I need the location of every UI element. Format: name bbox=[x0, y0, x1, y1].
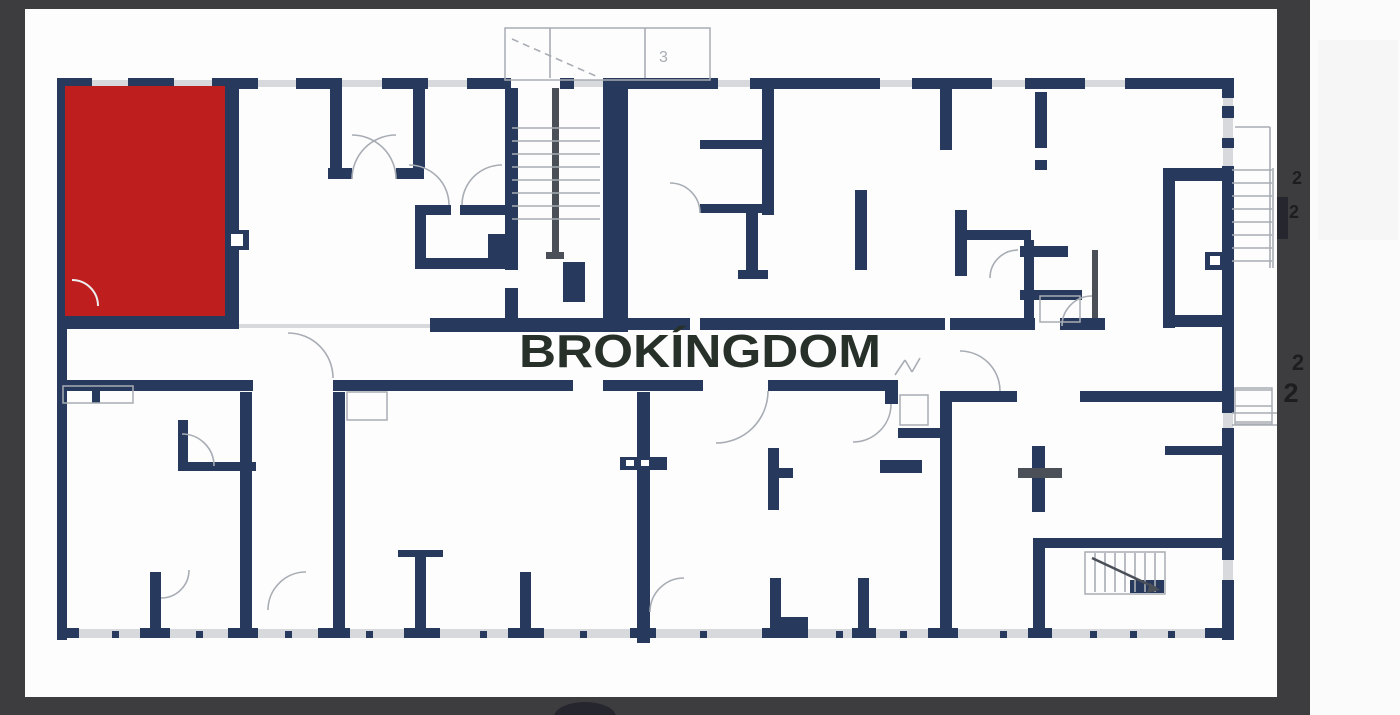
wall-segment bbox=[178, 462, 256, 471]
wall-segment bbox=[750, 78, 880, 89]
wall-segment bbox=[955, 210, 967, 276]
wall-segment bbox=[1000, 631, 1007, 638]
wall-segment bbox=[563, 262, 585, 302]
window-gap bbox=[880, 80, 912, 87]
wall-segment bbox=[1222, 166, 1234, 413]
wall-opening bbox=[1210, 256, 1220, 265]
window-gap bbox=[992, 80, 1025, 87]
wall-segment bbox=[738, 270, 768, 279]
window-gap bbox=[1223, 413, 1233, 428]
wall-segment bbox=[768, 448, 779, 510]
wall-segment bbox=[1205, 628, 1234, 638]
dimension-label: 2 bbox=[1289, 202, 1299, 222]
wall-segment bbox=[580, 631, 587, 638]
wall-segment bbox=[700, 140, 762, 149]
wall-segment bbox=[928, 628, 958, 638]
wall-segment bbox=[1035, 160, 1047, 170]
wall-segment bbox=[1222, 428, 1234, 560]
wall-segment bbox=[603, 380, 703, 391]
wall-segment bbox=[333, 380, 573, 391]
wall-segment bbox=[296, 78, 342, 89]
wall-segment bbox=[520, 572, 531, 628]
wall-segment bbox=[333, 392, 345, 628]
wall-segment bbox=[1028, 628, 1052, 638]
frame-rect bbox=[0, 0, 1310, 9]
wall-segment bbox=[779, 468, 793, 478]
wall-segment bbox=[885, 380, 898, 404]
wall-segment bbox=[413, 88, 425, 168]
wall-segment bbox=[1222, 138, 1234, 148]
wall-segment bbox=[746, 213, 758, 273]
wall-segment bbox=[1168, 631, 1175, 638]
wall-segment bbox=[460, 205, 508, 215]
wall-segment bbox=[92, 386, 100, 403]
wall-segment bbox=[940, 88, 952, 150]
wall-segment bbox=[770, 617, 808, 628]
wall-segment bbox=[1125, 78, 1232, 89]
wall-segment bbox=[240, 392, 252, 628]
highlighted-unit-layer bbox=[65, 86, 225, 316]
wall-segment bbox=[112, 631, 119, 638]
dimension-label: 2 bbox=[1292, 350, 1304, 375]
window-gap bbox=[428, 80, 467, 87]
wall-segment bbox=[508, 628, 544, 638]
wall-segment bbox=[404, 628, 440, 638]
canopy-mark: 3 bbox=[659, 49, 668, 66]
wall-segment bbox=[1035, 92, 1047, 148]
wall-opening bbox=[626, 460, 634, 466]
wall-segment bbox=[700, 631, 707, 638]
wall-segment bbox=[150, 572, 161, 628]
frame-rect bbox=[0, 697, 1310, 715]
floor-plan-viewer: BROKÍNGDOM 32222 bbox=[0, 0, 1400, 715]
dimension-label: 2 bbox=[1283, 378, 1298, 408]
wall-segment bbox=[1080, 391, 1222, 402]
frame-rect bbox=[1277, 197, 1288, 239]
wall-segment bbox=[1222, 106, 1234, 118]
wall-segment bbox=[415, 258, 510, 269]
wall-segment bbox=[1033, 538, 1223, 548]
wall-segment bbox=[836, 631, 843, 638]
wall-segment bbox=[1020, 246, 1068, 257]
wall-segment bbox=[366, 631, 373, 638]
wall-segment bbox=[1090, 631, 1097, 638]
wall-segment bbox=[196, 631, 203, 638]
wall-segment bbox=[330, 88, 342, 168]
wall-segment bbox=[398, 550, 443, 557]
wall-detail bbox=[546, 252, 564, 259]
wall-segment bbox=[225, 86, 239, 316]
wall-segment bbox=[318, 628, 350, 638]
wall-segment bbox=[415, 556, 426, 628]
window-gap bbox=[258, 80, 296, 87]
wall-detail bbox=[1092, 250, 1098, 318]
frame-rect bbox=[0, 0, 25, 715]
wall-segment bbox=[178, 420, 188, 462]
wall-segment bbox=[880, 460, 922, 473]
wall-segment bbox=[1222, 78, 1234, 98]
highlighted-unit[interactable] bbox=[65, 86, 225, 316]
wall-segment bbox=[228, 628, 258, 638]
watermark-text: BROKÍNGDOM bbox=[519, 325, 881, 377]
window-gap bbox=[239, 324, 435, 328]
wall-segment bbox=[912, 78, 992, 89]
window-gap bbox=[718, 80, 750, 87]
wall-segment bbox=[1033, 548, 1045, 628]
wall-segment bbox=[140, 628, 170, 638]
wall-segment bbox=[700, 204, 774, 213]
wall-segment bbox=[768, 380, 885, 391]
wall-segment bbox=[762, 628, 808, 638]
wall-segment bbox=[1032, 446, 1045, 512]
window-gap bbox=[1085, 80, 1125, 87]
dimension-label: 2 bbox=[1292, 168, 1302, 188]
wall-segment bbox=[57, 628, 79, 638]
wall-opening bbox=[641, 460, 649, 466]
wall-detail bbox=[1018, 468, 1062, 478]
floor-plan-canvas: BROKÍNGDOM 32222 bbox=[0, 0, 1400, 715]
wall-segment bbox=[382, 78, 428, 89]
wall-segment bbox=[328, 168, 352, 179]
window-gap bbox=[1223, 560, 1233, 580]
wall-segment bbox=[1165, 446, 1222, 455]
wall-detail bbox=[552, 88, 559, 228]
wall-segment bbox=[898, 428, 942, 438]
wall-segment bbox=[505, 88, 518, 270]
wall-segment bbox=[855, 190, 867, 270]
wall-segment bbox=[57, 316, 239, 329]
wall-segment bbox=[955, 230, 1031, 240]
wall-segment bbox=[285, 631, 292, 638]
wall-segment bbox=[637, 392, 650, 643]
wall-opening bbox=[231, 234, 243, 246]
wall-segment bbox=[950, 318, 1035, 330]
wall-segment bbox=[603, 78, 628, 332]
frame-rect bbox=[1318, 40, 1398, 240]
wall-segment bbox=[762, 88, 774, 215]
window-gap bbox=[92, 80, 128, 87]
wall-segment bbox=[940, 392, 952, 628]
window-gap bbox=[342, 80, 382, 87]
wall-segment bbox=[1130, 631, 1137, 638]
wall-segment bbox=[1163, 315, 1227, 327]
wall-segment bbox=[396, 168, 424, 179]
wall-segment bbox=[1163, 168, 1175, 328]
wall-segment bbox=[858, 578, 869, 633]
wall-segment bbox=[900, 631, 907, 638]
wall-segment bbox=[1060, 318, 1105, 330]
wall-segment bbox=[1025, 78, 1085, 89]
wall-segment bbox=[480, 631, 487, 638]
window-gap bbox=[174, 80, 212, 87]
wall-segment bbox=[1020, 290, 1082, 300]
